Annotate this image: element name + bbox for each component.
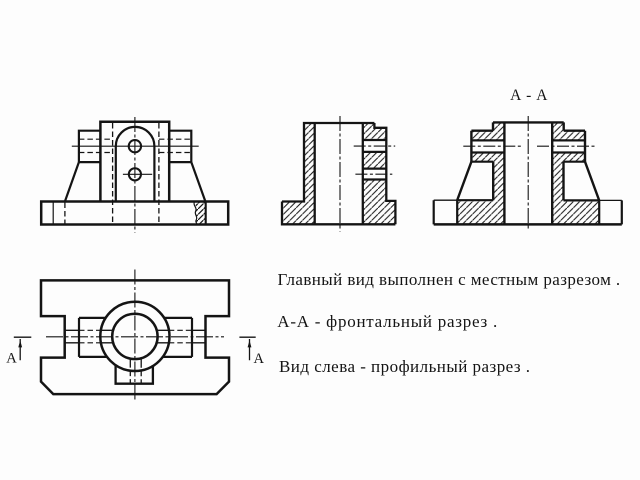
svg-text:А: А [6, 351, 17, 367]
svg-text:Вид слева - профильный разрез: Вид слева - профильный разрез . [279, 357, 531, 376]
svg-text:А-А - фронтальный разрез .: А-А - фронтальный разрез . [277, 312, 498, 331]
svg-text:А: А [254, 351, 265, 367]
svg-text:А - А: А - А [510, 87, 548, 104]
svg-text:Главный вид выполнен с местным: Главный вид выполнен с местным разрезом … [278, 270, 621, 289]
